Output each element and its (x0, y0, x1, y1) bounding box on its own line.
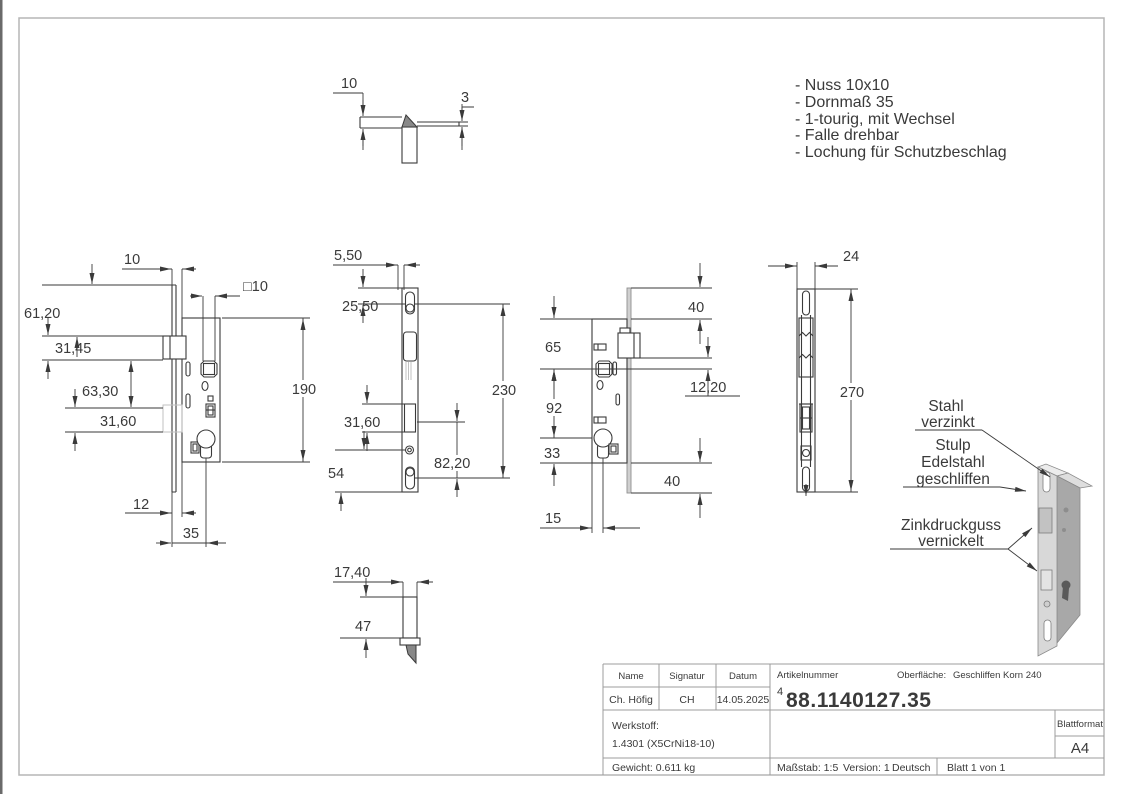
latch-flange (400, 638, 420, 645)
tb-signatur-label: Signatur (669, 671, 704, 682)
dim-label: 54 (328, 466, 344, 482)
dim-e-24: 24 (768, 249, 859, 289)
tb-sprache: Deutsch (892, 762, 931, 774)
tb-oberflaeche-value: Geschliffen Korn 240 (953, 670, 1042, 681)
material-label: Stulp (935, 437, 970, 454)
material-label: verzinkt (921, 414, 975, 431)
spec-item: - Nuss 10x10 (795, 77, 889, 94)
tb-werkstoff-value: 1.4301 (X5CrNi18-10) (612, 738, 715, 750)
tb-artikelnummer-value: 88.1140127.35 (786, 689, 931, 712)
latch-bolt (403, 597, 417, 638)
dim-label: 10 (341, 76, 357, 92)
view-stulp-front: 5,50 25,50 31,60 54 230 (328, 248, 522, 511)
dim-d-15: 15 (540, 463, 640, 533)
tb-datum-value: 14.05.2025 (717, 694, 770, 706)
dim-label: 40 (688, 300, 704, 316)
drawing-canvas: 10 3 (0, 0, 1123, 794)
dim-top-3: 3 (459, 90, 474, 150)
latch-top-view (402, 127, 417, 163)
dim-label: 5,50 (334, 248, 362, 264)
tb-name-value: Ch. Höfig (609, 694, 653, 706)
tb-massstab: Maßstab: 1:5 (777, 762, 838, 774)
screen-edge (0, 0, 3, 794)
iso-deadbolt (1041, 570, 1052, 590)
dim-label: 10 (124, 252, 140, 268)
dim-d-33: 33 (540, 438, 592, 486)
dim-b-190: 190 (222, 318, 321, 462)
iso-view (1038, 464, 1092, 656)
material-label: Stahl (928, 398, 963, 415)
stulp-edge (627, 288, 631, 493)
dim-label: 25,50 (342, 299, 378, 315)
follower-nut (201, 361, 217, 377)
tb-version: Version: 1 (843, 762, 890, 774)
dim-label: 3 (461, 90, 469, 106)
material-label: geschliffen (916, 471, 990, 488)
leader-stulp (1000, 487, 1026, 491)
dim-label: 15 (545, 511, 561, 527)
dim-d-40-bottom: 40 (631, 438, 712, 518)
latch-tip (406, 645, 416, 663)
dim-label: 270 (840, 385, 864, 401)
dim-c-25-50: 25,50 (342, 269, 405, 323)
dim-b-31-45: 31,45 (42, 317, 163, 379)
dim-label: □10 (243, 279, 268, 295)
dim-d-12-20: 12,20 (640, 337, 740, 396)
view-front: 24 270 (768, 249, 871, 496)
dim-label: 40 (664, 474, 680, 490)
material-label: Zinkdruckguss (901, 517, 1001, 534)
dim-e-270: 270 (815, 289, 871, 492)
dim-label: 31,60 (100, 414, 136, 430)
iso-body-side (1057, 476, 1080, 643)
tb-blatt: Blatt 1 von 1 (947, 762, 1006, 774)
material-label: vernickelt (918, 533, 984, 550)
dim-c-54: 54 (328, 431, 405, 511)
stulp-plate (797, 289, 815, 492)
spec-item: - Lochung für Schutzbeschlag (795, 144, 1007, 161)
dim-label: 63,30 (82, 384, 118, 400)
dim-d-65: 65 (540, 296, 592, 390)
dim-d-92: 92 (541, 369, 568, 438)
drawing-sheet: 10 3 (0, 0, 1123, 794)
latch-side (618, 333, 640, 358)
spec-item: - Dornmaß 35 (795, 94, 894, 111)
tb-werkstoff-label: Werkstoff: (612, 720, 659, 732)
dim-f-17-40: 17,40 (333, 565, 433, 597)
dim-c-5-50: 5,50 (333, 248, 420, 290)
dim-c-230: 230 (415, 304, 522, 478)
dim-label: 17,40 (334, 565, 370, 581)
dim-c-31-60: 31,60 (344, 385, 404, 451)
view-side-right: 40 65 12,20 92 33 (540, 263, 740, 533)
dim-label: 230 (492, 383, 516, 399)
dim-label: 82,20 (434, 456, 470, 472)
stulp-edge (172, 285, 176, 492)
view-bottom-detail: 17,40 47 (333, 565, 433, 663)
dim-top-10: 10 (333, 76, 363, 150)
dim-label: 12 (133, 497, 149, 513)
tb-blattformat-value: A4 (1071, 740, 1089, 757)
tb-gewicht: Gewicht: 0.611 kg (612, 762, 695, 774)
tb-artikelnummer-prefix: 4 (777, 686, 783, 698)
spec-item: - Falle drehbar (795, 127, 900, 144)
dim-label: 92 (546, 401, 562, 417)
dim-f-47: 47 (340, 578, 403, 658)
dim-label: 12,20 (690, 380, 726, 396)
dim-b-61-20: 61,20 (24, 264, 172, 357)
dim-label: 31,60 (344, 415, 380, 431)
dim-label: 190 (292, 382, 316, 398)
dim-label: 65 (545, 340, 561, 356)
title-block: Name Signatur Datum Ch. Höfig CH 14.05.2… (603, 664, 1104, 775)
spec-item: - 1-tourig, mit Wechsel (795, 111, 955, 128)
spec-annotations: - Nuss 10x10 - Dornmaß 35 - 1-tourig, mi… (795, 77, 1007, 161)
tb-blattformat-label: Blattformat (1057, 719, 1103, 730)
dim-d-40-top: 40 (631, 263, 712, 344)
stulp-plate (402, 288, 418, 492)
tb-oberflaeche-label: Oberfläche: (897, 670, 946, 681)
leader-zink-latch (1008, 528, 1032, 549)
latch-bevel (402, 115, 417, 127)
material-label: Edelstahl (921, 454, 985, 471)
iso-latch (1039, 508, 1052, 533)
dim-label: 33 (544, 446, 560, 462)
dim-label: 24 (843, 249, 859, 265)
tb-artikelnummer-label: Artikelnummer (777, 670, 838, 681)
dim-label: 31,45 (55, 341, 91, 357)
leader-zink-deadbolt (1008, 549, 1037, 571)
dim-c-82-20: 82,20 (417, 403, 481, 497)
tb-signatur-value: CH (679, 694, 694, 706)
material-callouts: Stahl verzinkt Stulp Edelstahl geschliff… (890, 398, 1050, 571)
dim-label: 47 (355, 619, 371, 635)
dim-b-35: 35 (156, 458, 226, 547)
leader-stahl (982, 430, 1050, 477)
tb-name-label: Name (618, 671, 643, 682)
tb-datum-label: Datum (729, 671, 757, 682)
view-top-detail: 10 3 (333, 76, 474, 163)
dim-label: 61,20 (24, 306, 60, 322)
latch-side (163, 336, 186, 359)
dim-b-63-30: 63,30 (65, 361, 163, 408)
dim-label: 35 (183, 526, 199, 542)
view-side-left: 10 □10 61,20 31,45 63,30 (24, 252, 321, 547)
